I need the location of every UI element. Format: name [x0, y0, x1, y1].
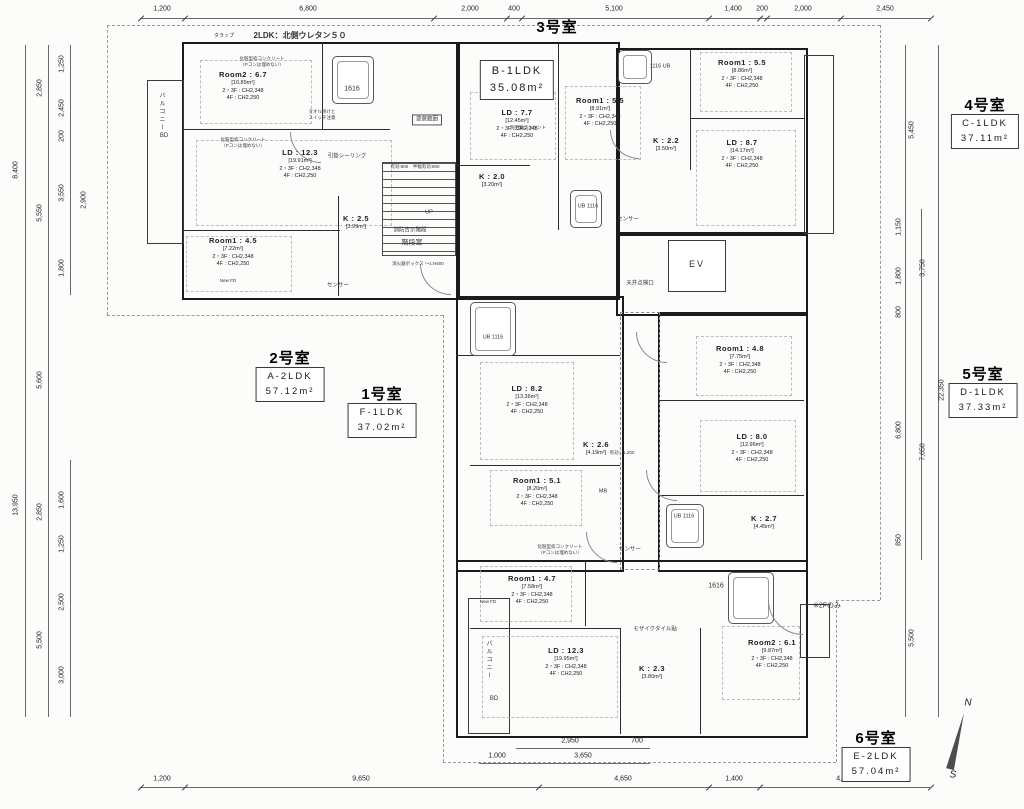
partition	[182, 230, 340, 231]
unit6-title: 6号室	[855, 727, 896, 748]
ceiling-light-label: 引掛シーリング	[328, 153, 367, 160]
room-area: [4.45m²]	[751, 524, 777, 531]
dimension-line	[70, 460, 71, 717]
compass-north-label: N	[964, 698, 971, 709]
towel-note-line: タオル掛けと	[309, 109, 336, 115]
partition	[700, 628, 701, 734]
room-name: Room2 : 6.7	[219, 70, 267, 80]
room-label-u2-room1: Room1 : 4.5 [7.22m²] 2・3F : CH2,348 4F :…	[209, 236, 257, 268]
room-label-u6-room2: Room2 : 6.1 [9.87m²] 2・3F : CH2,348 4F :…	[748, 638, 796, 670]
ub-label: UB 1116	[674, 513, 695, 520]
dim-label: 3,750	[920, 259, 927, 277]
partition	[620, 628, 621, 734]
dim-label: 1,150	[896, 218, 903, 236]
partition	[470, 628, 620, 629]
room-label-u3-k: K : 2.0 [3.20m²]	[479, 172, 505, 190]
dim-label: 1,600	[59, 491, 66, 509]
boundary-line	[836, 600, 880, 601]
room-label-u5-k: K : 2.7 [4.45m²]	[751, 514, 777, 532]
dim-label: 3,650	[574, 753, 592, 760]
balcony-label: バルコニー	[484, 640, 493, 680]
dimension-line	[905, 45, 906, 717]
room-area: [12.96m²]	[731, 442, 772, 449]
dimension-line	[48, 45, 49, 717]
room-ch: 2・3F : CH2,348	[209, 254, 257, 261]
room-ch: 2・3F : CH2,348	[576, 114, 624, 121]
outlet-label: 別回路コンセント	[510, 125, 546, 131]
sensor-label: センサー	[619, 546, 641, 553]
ub-label: UB 1116	[578, 203, 599, 210]
room-area: [7.75m²]	[716, 354, 764, 361]
ub-label: UB 1116	[483, 334, 504, 341]
concrete-note-line: 化粧型枠コンクリート	[221, 137, 266, 143]
dim-label: 13,950	[13, 494, 20, 515]
balcony-label: バルコニー	[157, 92, 166, 132]
room-area: [8.91m²]	[576, 106, 624, 113]
dim-tick	[928, 784, 934, 790]
bathtub-label: 1616	[708, 581, 724, 590]
unit3-area: 35.08m²	[490, 80, 544, 97]
unit1-type: F-1LDK	[358, 406, 407, 421]
unit2-area: 57.12m²	[266, 385, 315, 400]
dim-label: 1,250	[59, 535, 66, 553]
room-area: [7.22m²]	[209, 246, 257, 253]
dim-label: 200	[756, 6, 768, 13]
dim-label: 700	[631, 738, 643, 745]
partition	[658, 495, 804, 496]
towel-note-line: スイッチ注意	[309, 115, 336, 121]
dim-label: 8,400	[13, 161, 20, 179]
unit2-title: 2号室	[269, 347, 310, 368]
room-name: K : 2.7	[751, 514, 777, 524]
boundary-line	[107, 25, 880, 26]
room-area: [8.20m²]	[513, 486, 561, 493]
room-name: Room1 : 5.1	[513, 476, 561, 486]
compass-needle-icon	[946, 712, 968, 770]
dimension-line	[140, 787, 930, 788]
new-fd-label: New FD	[480, 599, 496, 605]
dim-label: 2,000	[461, 6, 479, 13]
dim-label: 7,650	[920, 443, 927, 461]
unit2-type: A-2LDK	[266, 370, 315, 385]
boundary-line	[107, 25, 108, 315]
partition	[585, 560, 586, 626]
up-label: UP	[425, 209, 433, 216]
dim-label: 2,500	[59, 593, 66, 611]
room-area: [10.89m²]	[219, 80, 267, 87]
dim-label: 2,950	[561, 738, 579, 745]
partition	[558, 42, 559, 230]
ub-label: 1116 UB	[650, 63, 671, 70]
floor-plan-canvas: 1,200 6,800 2,000 400 5,100 1,400 200 2,…	[0, 0, 1024, 809]
balcony-unit4	[804, 55, 834, 234]
dim-label: 1,200	[153, 776, 171, 783]
unit6-type: E-2LDK	[852, 750, 901, 765]
unit1-typebox: F-1LDK 37.02m²	[348, 403, 417, 438]
dim-label: 2,900	[81, 191, 88, 209]
boundary-line	[107, 315, 443, 316]
dim-label: 6,800	[896, 421, 903, 439]
spec-note: 2LDK：北側ウレタン５０	[254, 31, 347, 41]
concrete-note-line: 化粧型枠コンクリート	[538, 544, 583, 550]
dim-label: 3,000	[59, 666, 66, 684]
room-label-u2-room2: Room2 : 6.7 [10.89m²] 2・3F : CH2,348 4F …	[219, 70, 267, 102]
bd-label: BD	[160, 133, 168, 141]
concrete-note: 化粧型枠コンクリート （Pコンは埋めない）	[240, 56, 285, 68]
room-label-u2-ld: LD : 12.3 [19.91m²] 2・3F : CH2,348 4F : …	[279, 148, 320, 180]
dimension-line	[25, 45, 26, 717]
dim-label: 1,800	[59, 259, 66, 277]
dim-label: 400	[508, 6, 520, 13]
dim-label: 2,450	[59, 99, 66, 117]
dim-label: 5,100	[605, 6, 623, 13]
concrete-note: 化粧型枠コンクリート （Pコンは埋めない）	[221, 137, 266, 149]
dim-label: 5,550	[37, 204, 44, 222]
dim-label: 3,550	[59, 184, 66, 202]
room-name: Room1 : 5.5	[576, 96, 624, 106]
room-label-u3-room1: Room1 : 5.5 [8.91m²] 2・3F : CH2,348 4F :…	[576, 96, 624, 128]
dim-label: 1,800	[896, 267, 903, 285]
room-label-u4-ld: LD : 8.7 [14.17m²] 2・3F : CH2,348 4F : C…	[721, 138, 762, 170]
room-ch: 2・3F : CH2,348	[731, 450, 772, 457]
unit5-typebox: D-1LDK 37.33m²	[949, 383, 1018, 418]
effective-1200-label: 有効：1,200	[610, 450, 635, 456]
partition	[658, 400, 804, 401]
dimension-line	[70, 45, 71, 295]
unit3-title: 3号室	[536, 16, 577, 37]
room-ch: 2・3F : CH2,348	[545, 664, 586, 671]
fire-stair-label: 消防告示階段	[393, 227, 426, 234]
unit3-type: B-1LDK	[490, 63, 544, 80]
ceiling-hatch-label: 天井点検口	[626, 280, 654, 287]
unit4-typebox: C-1LDK 37.11m²	[951, 114, 1019, 149]
room-name: LD : 12.3	[279, 148, 320, 158]
bd-label: BD	[490, 696, 498, 704]
boundary-line	[443, 315, 444, 762]
room-area: [13.36m²]	[506, 394, 547, 401]
porch-unit6	[800, 604, 830, 658]
unit5-area: 37.33m²	[959, 401, 1008, 416]
towel-note: タオル掛けと スイッチ注意	[309, 109, 336, 121]
dim-label: 2,000	[794, 6, 812, 13]
room-ch: 2・3F : CH2,348	[748, 656, 796, 663]
room-ch: 4F : CH2,250	[219, 95, 267, 102]
partition	[690, 48, 691, 170]
boundary-line	[880, 25, 881, 600]
unit6-typebox: E-2LDK 57.04m²	[842, 747, 911, 782]
dim-label: 4,650	[614, 776, 632, 783]
concrete-note-line: （Pコンは埋めない）	[240, 62, 285, 68]
unit6-area: 57.04m²	[852, 765, 901, 780]
dim-label: 9,650	[352, 776, 370, 783]
sensor-label: センサー	[327, 282, 349, 289]
elevator-label: EV	[689, 259, 705, 271]
room-name: LD : 12.3	[545, 646, 586, 656]
bathtub	[618, 50, 652, 84]
room-name: Room1 : 4.5	[209, 236, 257, 246]
dim-label: 2,850	[37, 79, 44, 97]
partition	[470, 465, 620, 466]
dim-label: 5,500	[37, 631, 44, 649]
mosaic-tile-label: モザイクタイル貼	[633, 626, 677, 633]
room-label-u1-k: K : 2.6 [4.19m²]	[583, 440, 609, 458]
room-label-u4-k: K : 2.2 [3.50m²]	[653, 136, 679, 154]
dim-label: 2,450	[876, 6, 894, 13]
dim-tick	[928, 15, 934, 21]
dim-label: 5,500	[909, 629, 916, 647]
room-name: Room1 : 4.7	[508, 574, 556, 584]
room-area: [3.50m²]	[653, 146, 679, 153]
room-ch: 4F : CH2,250	[716, 369, 764, 376]
room-ch: 2・3F : CH2,348	[279, 166, 320, 173]
dim-label: 5,450	[909, 121, 916, 139]
room-area: [3.80m²]	[639, 674, 665, 681]
room-area: [7.58m²]	[508, 584, 556, 591]
bathtub	[332, 56, 374, 104]
dim-label: 1,400	[725, 776, 743, 783]
unit1-area: 37.02m²	[358, 421, 407, 436]
dimension-line	[479, 763, 650, 764]
mb-label: MB	[599, 488, 607, 495]
room-label-u1-room1: Room1 : 5.1 [8.20m²] 2・3F : CH2,348 4F :…	[513, 476, 561, 508]
room-ch: 4F : CH2,250	[748, 663, 796, 670]
stair-room-label: 階段室	[402, 238, 423, 247]
room-ch: 2・3F : CH2,348	[718, 76, 766, 83]
dim-label: 22,350	[939, 379, 946, 400]
room-name: K : 2.2	[653, 136, 679, 146]
room-name: Room1 : 4.8	[716, 344, 764, 354]
room-ch: 2・3F : CH2,348	[508, 592, 556, 599]
room-ch: 4F : CH2,250	[721, 163, 762, 170]
room-area: [19.91m²]	[279, 158, 320, 165]
effective-width-label: 有効:800 半幅有効:800	[390, 164, 439, 170]
room-area: [9.87m²]	[748, 648, 796, 655]
room-ch: 2・3F : CH2,348	[716, 362, 764, 369]
room-label-u4-room1: Room1 : 5.5 [8.86m²] 2・3F : CH2,348 4F :…	[718, 58, 766, 90]
dim-label: 200	[59, 130, 66, 142]
unit1-title: 1号室	[361, 383, 402, 404]
only-2f-note: ※2Fのみ	[813, 601, 841, 610]
concrete-note-line: （Pコンは埋めない）	[538, 550, 583, 556]
dim-label: 6,800	[299, 6, 317, 13]
dim-label: 1,250	[59, 55, 66, 73]
room-name: Room2 : 6.1	[748, 638, 796, 648]
room-ch: 4F : CH2,250	[279, 173, 320, 180]
room-name: LD : 8.7	[721, 138, 762, 148]
boundary-line	[836, 600, 837, 762]
dim-label: 850	[896, 534, 903, 546]
room-name: K : 2.0	[479, 172, 505, 182]
room-ch: 2・3F : CH2,348	[219, 88, 267, 95]
compass-south-label: S	[950, 770, 957, 781]
unit4-title: 4号室	[964, 94, 1005, 115]
concrete-note-line: （Pコンは埋めない）	[221, 143, 266, 149]
unit5-type: D-1LDK	[959, 386, 1008, 401]
dimension-line	[140, 18, 930, 19]
room-area: [19.95m²]	[545, 656, 586, 663]
room-label-u2-k: K : 2.5 [3.99m²]	[343, 214, 369, 232]
room-name: K : 2.5	[343, 214, 369, 224]
bathtub	[728, 572, 774, 624]
room-label-u1-ld: LD : 8.2 [13.36m²] 2・3F : CH2,348 4F : C…	[506, 384, 547, 416]
room-ch: 4F : CH2,250	[545, 671, 586, 678]
bathtub	[666, 504, 704, 548]
room-name: LD : 8.0	[731, 432, 772, 442]
room-label-u6-room1: Room1 : 4.7 [7.58m²] 2・3F : CH2,348 4F :…	[508, 574, 556, 606]
concrete-note-line: 化粧型枠コンクリート	[240, 56, 285, 62]
dim-label: 1,000	[488, 753, 506, 760]
room-label-u5-ld: LD : 8.0 [12.96m²] 2・3F : CH2,348 4F : C…	[731, 432, 772, 464]
room-area: [8.86m²]	[718, 68, 766, 75]
room-ch: 2・3F : CH2,348	[721, 156, 762, 163]
bathtub-label: 1616	[344, 84, 360, 93]
room-name: K : 2.3	[639, 664, 665, 674]
room-ch: 4F : CH2,250	[508, 599, 556, 606]
room-area: [3.99m²]	[343, 224, 369, 231]
unit2-typebox: A-2LDK 57.12m²	[256, 367, 325, 402]
new-fd-label: New FD	[220, 278, 236, 284]
unit3-typebox: B-1LDK 35.08m²	[480, 60, 554, 100]
room-ch: 4F : CH2,250	[506, 409, 547, 416]
partition	[690, 118, 804, 119]
unit4-area: 37.11m²	[961, 132, 1009, 147]
room-ch: 4F : CH2,250	[718, 83, 766, 90]
room-name: K : 2.6	[583, 440, 609, 450]
room-area: [3.20m²]	[479, 182, 505, 189]
dim-label: 5,600	[37, 371, 44, 389]
room-ch: 4F : CH2,250	[513, 501, 561, 508]
room-label-u6-k: K : 2.3 [3.80m²]	[639, 664, 665, 682]
unit5-title: 5号室	[962, 363, 1003, 384]
room-label-u5-room1: Room1 : 4.8 [7.75m²] 2・3F : CH2,348 4F :…	[716, 344, 764, 376]
room-area: [14.17m²]	[721, 148, 762, 155]
dim-label: 1,400	[724, 6, 742, 13]
room-ch: 4F : CH2,250	[731, 457, 772, 464]
dim-label: 2,850	[37, 503, 44, 521]
bathtub	[470, 302, 516, 356]
partition	[182, 129, 390, 130]
room-name: Room1 : 5.5	[718, 58, 766, 68]
room-label-u6-ld: LD : 12.3 [19.95m²] 2・3F : CH2,348 4F : …	[545, 646, 586, 678]
extinguisher-label: 消火器ボックス 〜1:H600	[392, 261, 444, 267]
room-ch: 4F : CH2,250	[496, 133, 537, 140]
room-name: LD : 8.2	[506, 384, 547, 394]
room-ch: 2・3F : CH2,348	[513, 494, 561, 501]
dim-label: 1,200	[153, 6, 171, 13]
sensor-label: センサー	[617, 216, 639, 223]
paint-range-label: 塗装範囲	[412, 114, 442, 125]
concrete-note: 化粧型枠コンクリート （Pコンは埋めない）	[538, 544, 583, 556]
room-ch: 4F : CH2,250	[209, 261, 257, 268]
room-ch: 4F : CH2,250	[576, 121, 624, 128]
room-ch: 2・3F : CH2,348	[506, 402, 547, 409]
partition	[456, 165, 530, 166]
trap-note: タラップ	[214, 33, 234, 40]
dimension-line	[516, 748, 650, 749]
dim-label: 800	[896, 306, 903, 318]
unit4-type: C-1LDK	[961, 117, 1009, 132]
room-name: LD : 7.7	[496, 108, 537, 118]
room-area: [4.19m²]	[583, 450, 609, 457]
